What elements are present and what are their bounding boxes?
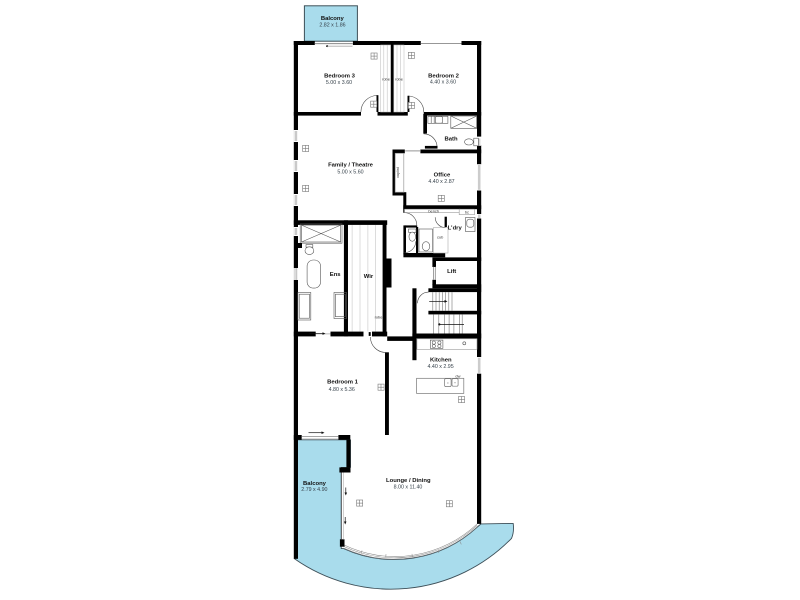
svg-text:5.00 x 5.60: 5.00 x 5.60: [337, 169, 363, 175]
svg-text:Bedroom 1: Bedroom 1: [327, 379, 358, 385]
svg-text:4.40 x 3.60: 4.40 x 3.60: [430, 80, 456, 86]
svg-text:robe: robe: [375, 314, 383, 319]
svg-text:Lift: Lift: [447, 269, 456, 275]
svg-text:dw: dw: [455, 374, 460, 379]
svg-text:2.79 x 4.90: 2.79 x 4.90: [301, 487, 327, 493]
svg-text:cupbd: cupbd: [395, 167, 400, 178]
svg-text:Bedroom 3: Bedroom 3: [324, 74, 355, 80]
svg-text:robe: robe: [382, 76, 390, 81]
svg-text:Kitchen: Kitchen: [430, 358, 452, 364]
svg-text:Office: Office: [434, 173, 451, 179]
svg-text:Family / Theatre: Family / Theatre: [328, 163, 374, 169]
svg-text:Wir: Wir: [364, 274, 374, 280]
svg-text:Bath: Bath: [444, 136, 457, 142]
svg-text:Balcony: Balcony: [303, 481, 327, 487]
svg-text:bc: bc: [465, 210, 469, 215]
svg-text:2.82 x 1.86: 2.82 x 1.86: [319, 22, 345, 28]
svg-text:bench: bench: [428, 208, 439, 213]
svg-text:Balcony: Balcony: [321, 16, 345, 22]
svg-text:4.40 x 2.87: 4.40 x 2.87: [428, 179, 454, 185]
svg-text:5.00 x 3.60: 5.00 x 3.60: [326, 80, 352, 86]
svg-text:4.80 x 5.36: 4.80 x 5.36: [329, 387, 355, 393]
svg-text:cub: cub: [437, 234, 443, 239]
svg-text:L’dry: L’dry: [448, 226, 463, 232]
svg-text:Lounge / Dining: Lounge / Dining: [386, 478, 431, 484]
svg-text:robe: robe: [395, 76, 403, 81]
svg-text:8.00 x 11.40: 8.00 x 11.40: [394, 485, 423, 491]
svg-text:4.40 x 2.95: 4.40 x 2.95: [427, 364, 453, 370]
svg-text:Bedroom 2: Bedroom 2: [428, 73, 459, 79]
svg-text:Ens: Ens: [330, 272, 342, 278]
